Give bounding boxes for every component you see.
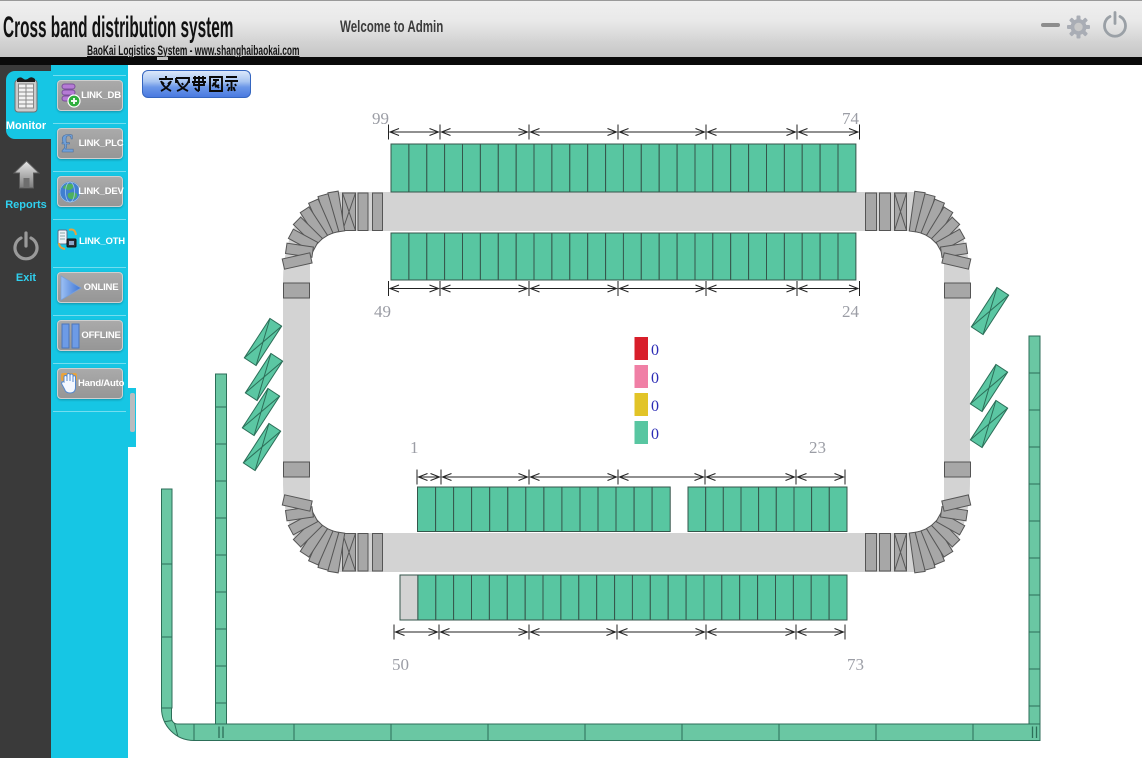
svg-text:0: 0 <box>651 398 659 415</box>
svg-text:50: 50 <box>392 655 409 674</box>
svg-text:23: 23 <box>809 438 826 457</box>
svg-text:1: 1 <box>410 438 419 457</box>
svg-text:74: 74 <box>842 109 860 128</box>
svg-text:24: 24 <box>842 302 860 321</box>
svg-text:0: 0 <box>651 370 659 387</box>
svg-text:0: 0 <box>651 426 659 443</box>
svg-text:£: £ <box>61 131 74 157</box>
svg-text:49: 49 <box>374 302 391 321</box>
svg-text:99: 99 <box>372 109 389 128</box>
svg-text:73: 73 <box>847 655 864 674</box>
svg-text:0: 0 <box>651 342 659 359</box>
